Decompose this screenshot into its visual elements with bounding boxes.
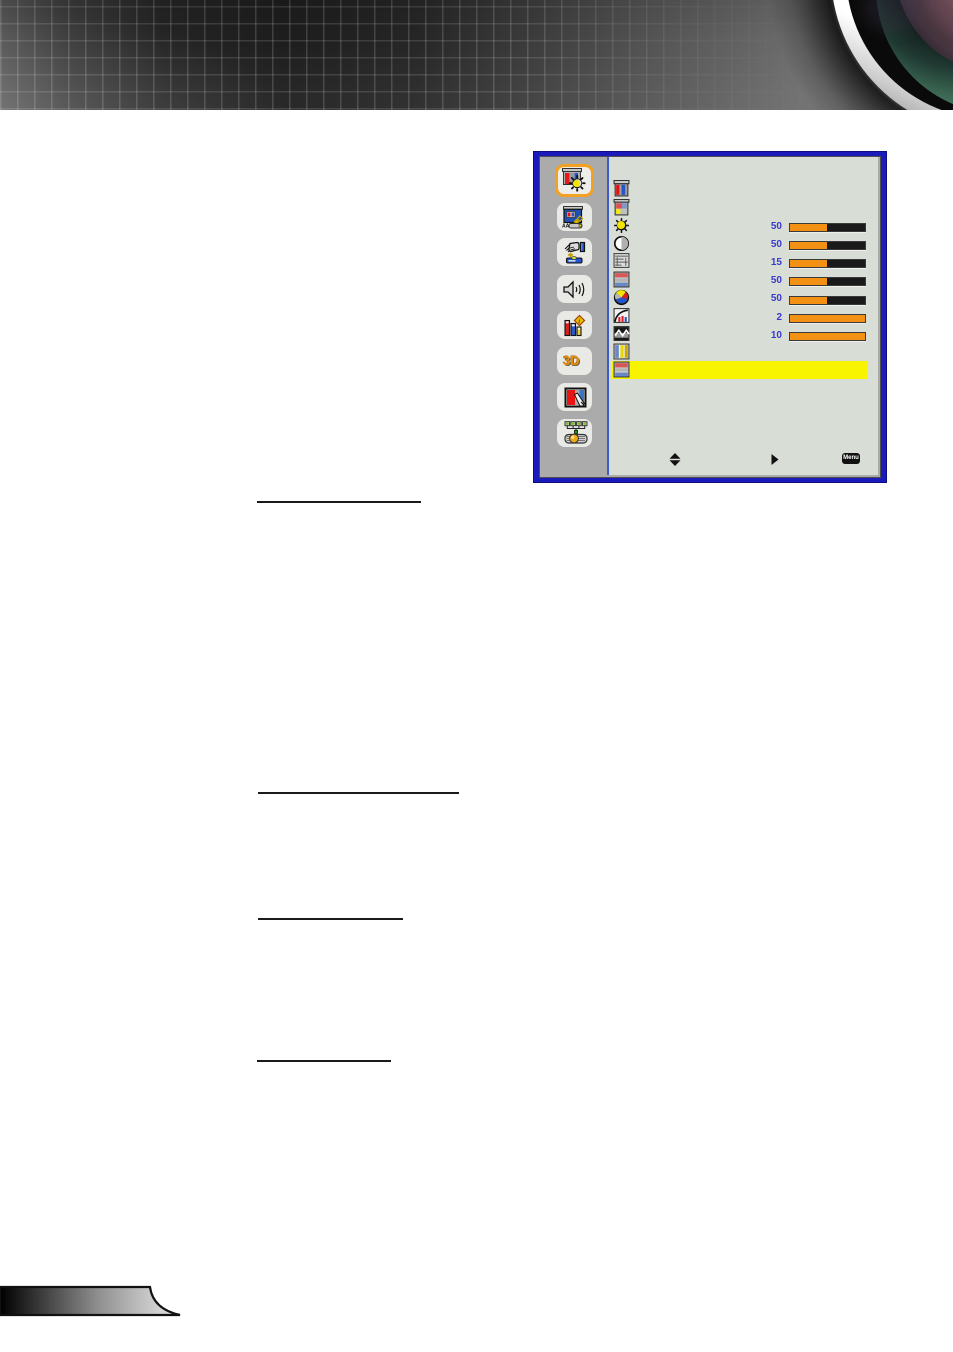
svg-text:i: i	[578, 317, 580, 325]
svg-text:AA: AA	[562, 224, 570, 230]
